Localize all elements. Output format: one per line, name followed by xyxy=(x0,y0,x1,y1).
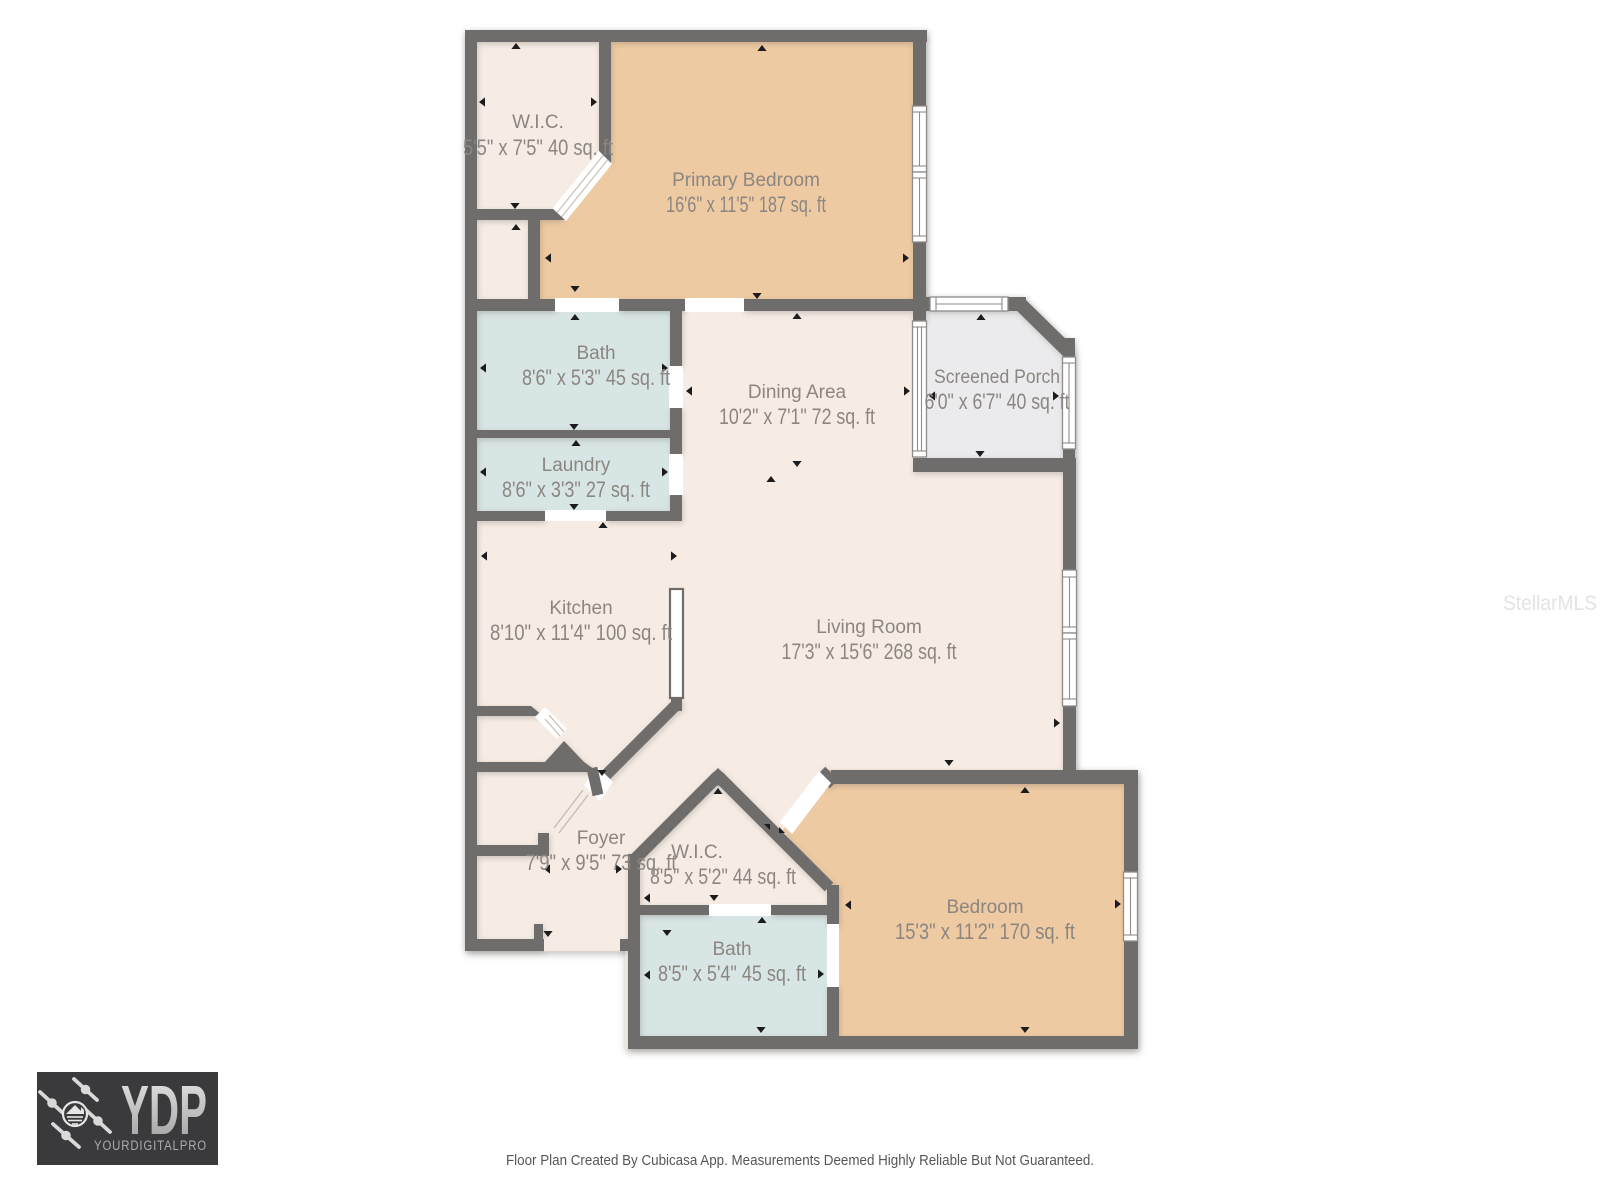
svg-text:W.I.C.: W.I.C. xyxy=(671,842,723,863)
svg-text:Floor Plan Created By Cubicasa: Floor Plan Created By Cubicasa App. Meas… xyxy=(506,1152,1094,1169)
svg-text:16'6" x 11'5" 187 sq. ft: 16'6" x 11'5" 187 sq. ft xyxy=(666,192,826,217)
svg-text:Foyer: Foyer xyxy=(577,828,626,849)
svg-text:Living Room: Living Room xyxy=(816,617,922,638)
svg-text:8'6" x 3'3" 27 sq. ft: 8'6" x 3'3" 27 sq. ft xyxy=(502,477,650,502)
svg-text:Dining Area: Dining Area xyxy=(748,382,847,403)
svg-text:Bedroom: Bedroom xyxy=(946,897,1023,918)
svg-text:YOURDIGITALPRO: YOURDIGITALPRO xyxy=(94,1138,207,1153)
svg-text:8'5" x 5'4" 45 sq. ft: 8'5" x 5'4" 45 sq. ft xyxy=(658,961,806,986)
svg-text:Screened Porch: Screened Porch xyxy=(934,367,1060,388)
svg-text:6'0" x 6'7" 40 sq. ft: 6'0" x 6'7" 40 sq. ft xyxy=(925,389,1070,414)
svg-text:8'10" x 11'4" 100 sq. ft: 8'10" x 11'4" 100 sq. ft xyxy=(490,620,672,645)
svg-text:10'2" x 7'1" 72 sq. ft: 10'2" x 7'1" 72 sq. ft xyxy=(719,404,875,429)
svg-text:Bath: Bath xyxy=(576,343,615,364)
svg-text:15'3" x 11'2" 170 sq. ft: 15'3" x 11'2" 170 sq. ft xyxy=(895,919,1075,944)
svg-text:Bath: Bath xyxy=(712,939,751,960)
svg-text:8'5" x 5'2" 44 sq. ft: 8'5" x 5'2" 44 sq. ft xyxy=(650,864,796,889)
svg-text:5'5" x 7'5" 40 sq. ft: 5'5" x 7'5" 40 sq. ft xyxy=(463,135,613,160)
svg-text:Laundry: Laundry xyxy=(542,455,611,476)
svg-text:8'6" x 5'3" 45 sq. ft: 8'6" x 5'3" 45 sq. ft xyxy=(522,365,670,390)
svg-text:W.I.C.: W.I.C. xyxy=(512,112,564,133)
svg-text:17'3" x 15'6" 268 sq. ft: 17'3" x 15'6" 268 sq. ft xyxy=(782,639,957,664)
svg-text:Kitchen: Kitchen xyxy=(549,598,612,619)
svg-text:StellarMLS: StellarMLS xyxy=(1503,592,1597,615)
svg-text:Primary Bedroom: Primary Bedroom xyxy=(672,170,820,191)
